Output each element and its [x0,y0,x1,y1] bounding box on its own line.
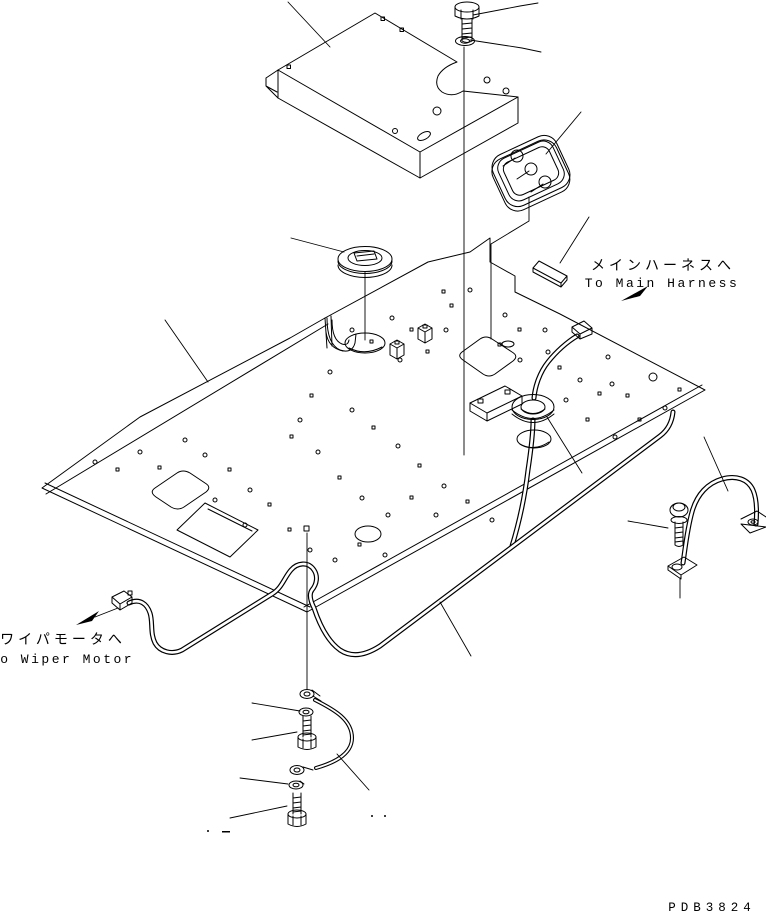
panel-hook [326,318,356,351]
wiper-motor-arrow [76,608,118,625]
ground-cable [290,690,352,775]
panel-holes [93,288,681,562]
cover-panel [266,13,518,178]
clip-nut-1 [390,340,404,359]
wiper-motor-label-jp: ワイパモータへ [0,632,126,649]
ground-bolt-lower [288,793,306,827]
roof-panel [42,238,705,612]
leader-lines [165,2,728,818]
wiper-motor-label-en: To Wiper Motor [0,652,134,667]
ground-bolt-upper [298,716,316,750]
exploded-view-drawing: メインハーネスへ To Main Harness ワイパモータへ To Wipe… [0,0,766,914]
parts-diagram-page: メインハーネスへ To Main Harness ワイパモータへ To Wipe… [0,0,766,914]
drawing-number: PDB3824 [668,901,756,914]
harness-clip [533,261,567,287]
ring-terminal-lower [290,766,313,775]
ring-terminal-upper [300,690,321,702]
clip-nut-2 [418,324,432,343]
main-harness-label-en: To Main Harness [585,276,740,291]
main-harness-label-jp: メインハーネスへ [591,258,735,275]
ground-point-hole [304,526,309,531]
room-lamp [486,131,577,216]
washer-lower [299,708,313,716]
spring-washer [289,781,304,789]
wiring-harness [112,321,673,655]
